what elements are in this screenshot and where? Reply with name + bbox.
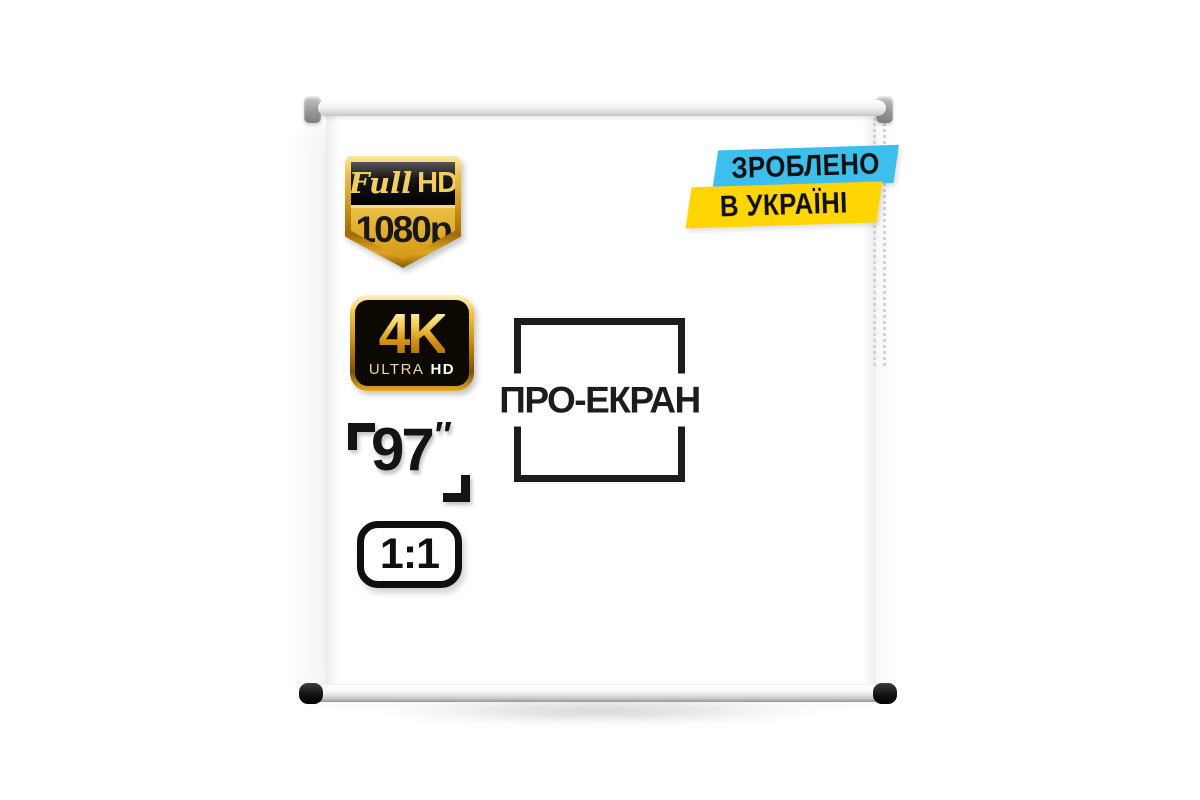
shield-resolution-panel: 1080p bbox=[351, 208, 455, 260]
full-hd-1080p-badge: Full HD 1080p bbox=[345, 156, 461, 268]
made-in-line2: В УКРАЇНІ bbox=[720, 188, 849, 222]
logo-text: ПРО-ЕКРАН bbox=[488, 374, 711, 427]
hd-label: HD bbox=[430, 362, 455, 377]
diagonal-size-mark: 97″ bbox=[348, 416, 474, 502]
full-hd-hd-label: HD bbox=[417, 169, 457, 198]
end-cap-left bbox=[299, 683, 323, 704]
shield-black-panel: Full HD bbox=[351, 162, 455, 208]
diagonal-size-number: 97 bbox=[371, 416, 432, 483]
aspect-ratio-badge: 1:1 bbox=[357, 521, 462, 588]
ukraine-flag-yellow-bar: В УКРАЇНІ bbox=[686, 181, 883, 228]
brand-logo: ПРО-ЕКРАН bbox=[514, 318, 685, 482]
inch-unit-mark: ″ bbox=[435, 414, 449, 455]
4k-label: 4K bbox=[379, 309, 446, 359]
4k-badge-black-body: 4K ULTRA HD bbox=[355, 300, 469, 386]
made-in-ukraine-ribbon: ЗРОБЛЕНО В УКРАЇНІ bbox=[685, 143, 910, 236]
bottom-weight-bar bbox=[303, 685, 893, 702]
roller-tube bbox=[318, 100, 886, 116]
floor-shadow bbox=[292, 698, 906, 730]
full-hd-script-label: Full bbox=[349, 169, 412, 198]
made-in-line1: ЗРОБЛЕНО bbox=[731, 149, 880, 184]
end-cap-right bbox=[873, 683, 897, 704]
ultra-label: ULTRA bbox=[369, 362, 425, 377]
4k-ultra-hd-badge: 4K ULTRA HD bbox=[350, 295, 474, 391]
ultra-hd-label: ULTRA HD bbox=[369, 362, 455, 377]
resolution-1080p-label: 1080p bbox=[356, 211, 451, 260]
projector-screen-product-image: Full HD 1080p 4K ULTRA HD 97″ 1:1 bbox=[0, 0, 1200, 800]
diagonal-size-value: 97″ bbox=[371, 420, 449, 480]
aspect-ratio-value: 1:1 bbox=[380, 533, 439, 576]
